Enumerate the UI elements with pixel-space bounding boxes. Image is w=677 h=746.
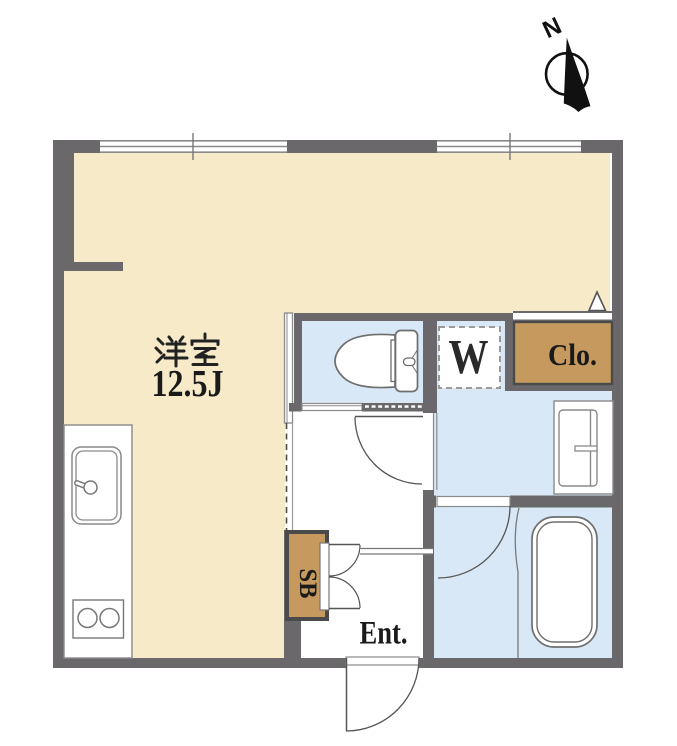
svg-text:W: W xyxy=(449,329,489,384)
svg-text:N: N xyxy=(539,12,566,44)
svg-text:SB: SB xyxy=(294,569,321,599)
svg-text:12.5J: 12.5J xyxy=(152,363,224,405)
svg-text:Ent.: Ent. xyxy=(360,616,408,652)
svg-text:Clo.: Clo. xyxy=(548,337,597,372)
